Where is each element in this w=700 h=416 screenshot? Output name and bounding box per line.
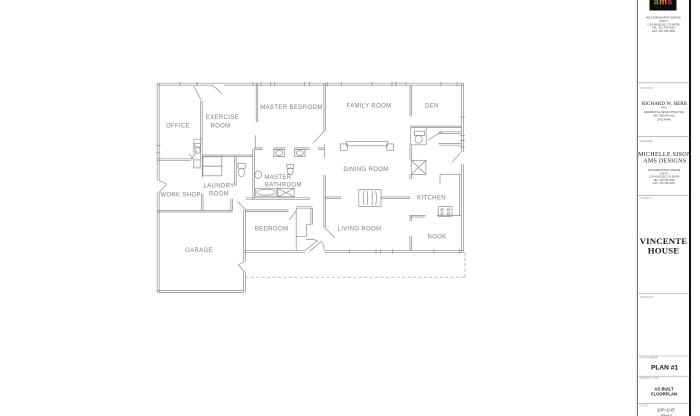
svg-text:HOUSE: HOUSE xyxy=(648,245,680,255)
svg-text:WORK SHOP: WORK SHOP xyxy=(160,193,201,199)
svg-text:FAX. 310.795.4235: FAX. 310.795.4235 xyxy=(653,182,675,185)
svg-text:ARCHITECT: ARCHITECT xyxy=(640,87,654,90)
svg-text:DESIGNER: DESIGNER xyxy=(640,140,653,143)
svg-text:ROOM: ROOM xyxy=(209,192,229,198)
svg-text:TEL. 310.795.4235: TEL. 310.795.4235 xyxy=(652,26,675,30)
svg-text:AS BUILT: AS BUILT xyxy=(655,386,674,391)
svg-text:AMS DESIGNS: AMS DESIGNS xyxy=(643,159,686,165)
svg-text:DINING ROOM: DINING ROOM xyxy=(343,167,388,173)
svg-text:MICHELLE SISON: MICHELLE SISON xyxy=(638,152,692,158)
svg-text:NOOK: NOOK xyxy=(427,235,446,241)
svg-text:PLAN #1: PLAN #1 xyxy=(651,365,678,372)
svg-text:PLAN NUMBER: PLAN NUMBER xyxy=(640,357,658,360)
svg-text:OFFICE: OFFICE xyxy=(166,124,190,130)
svg-text:UNIT 5: UNIT 5 xyxy=(659,19,668,23)
svg-text:KITCHEN: KITCHEN xyxy=(417,196,446,202)
svg-text:1/4"=1'-0": 1/4"=1'-0" xyxy=(657,407,676,412)
svg-text:ROOM: ROOM xyxy=(210,124,230,130)
svg-text:(972) 40446: (972) 40446 xyxy=(657,119,671,122)
svg-text:LIVING ROOM: LIVING ROOM xyxy=(338,227,382,233)
svg-text:MASTER BEDROOM: MASTER BEDROOM xyxy=(260,105,323,111)
svg-text:REVISIONS: REVISIONS xyxy=(640,296,653,299)
svg-text:EXERCISE: EXERCISE xyxy=(206,115,239,121)
svg-text:DRAWING TITLE: DRAWING TITLE xyxy=(640,377,659,380)
svg-text:LAUNDRY: LAUNDRY xyxy=(203,184,234,190)
svg-text:FLOORPLAN: FLOORPLAN xyxy=(651,392,677,397)
svg-text:FAX. 310.795.4235: FAX. 310.795.4235 xyxy=(652,29,676,33)
svg-text:BEDROOM: BEDROOM xyxy=(255,227,288,233)
svg-text:DEN: DEN xyxy=(425,104,439,110)
svg-text:ams: ams xyxy=(654,0,673,6)
svg-text:LOS ANGELES, CA 90039: LOS ANGELES, CA 90039 xyxy=(648,22,680,26)
svg-text:RESIDENTIAL DESIGN PRACTICE: RESIDENTIAL DESIGN PRACTICE xyxy=(644,111,684,114)
svg-text:MASTER: MASTER xyxy=(264,175,291,181)
svg-text:SCALE: SCALE xyxy=(640,405,648,408)
svg-text:FAMILY ROOM: FAMILY ROOM xyxy=(347,104,392,110)
svg-text:BATHROOM: BATHROOM xyxy=(265,183,302,189)
svg-text:GARAGE: GARAGE xyxy=(185,248,213,254)
svg-text:FAIA: FAIA xyxy=(661,107,667,110)
svg-text:SEC 7539 (P) 2023: SEC 7539 (P) 2023 xyxy=(653,115,675,118)
svg-text:PROJECT: PROJECT xyxy=(640,197,652,200)
